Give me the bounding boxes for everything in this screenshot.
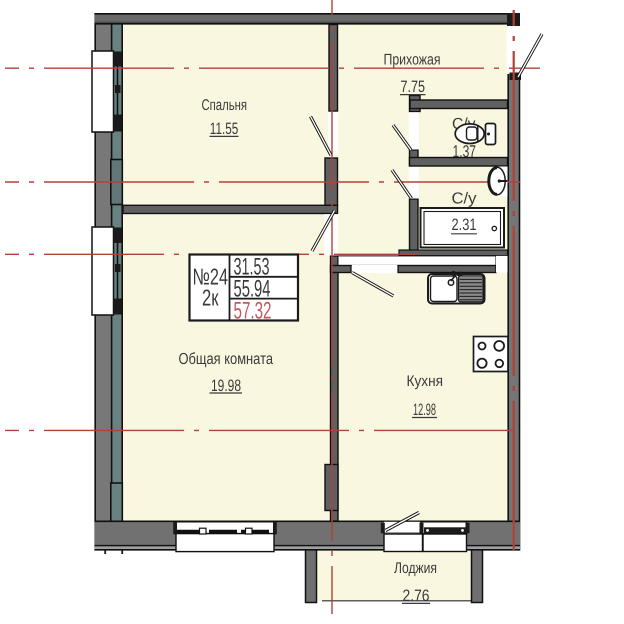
svg-text:2.76: 2.76 [403,587,430,605]
svg-text:Спальня: Спальня [202,97,248,114]
svg-text:12.98: 12.98 [413,401,436,419]
svg-text:Лоджия: Лоджия [394,560,437,577]
svg-text:2.31: 2.31 [452,216,477,234]
svg-text:57.32: 57.32 [234,297,272,324]
svg-text:Прихожая: Прихожая [384,52,441,69]
svg-text:1.37: 1.37 [453,142,477,161]
svg-text:Общая комната: Общая комната [179,351,274,368]
svg-text:11.55: 11.55 [210,120,239,138]
svg-text:19.98: 19.98 [211,377,241,395]
svg-text:2к: 2к [202,285,219,311]
svg-text:С/у: С/у [452,191,477,208]
svg-text:7.75: 7.75 [401,78,426,96]
svg-text:Кухня: Кухня [407,373,444,390]
